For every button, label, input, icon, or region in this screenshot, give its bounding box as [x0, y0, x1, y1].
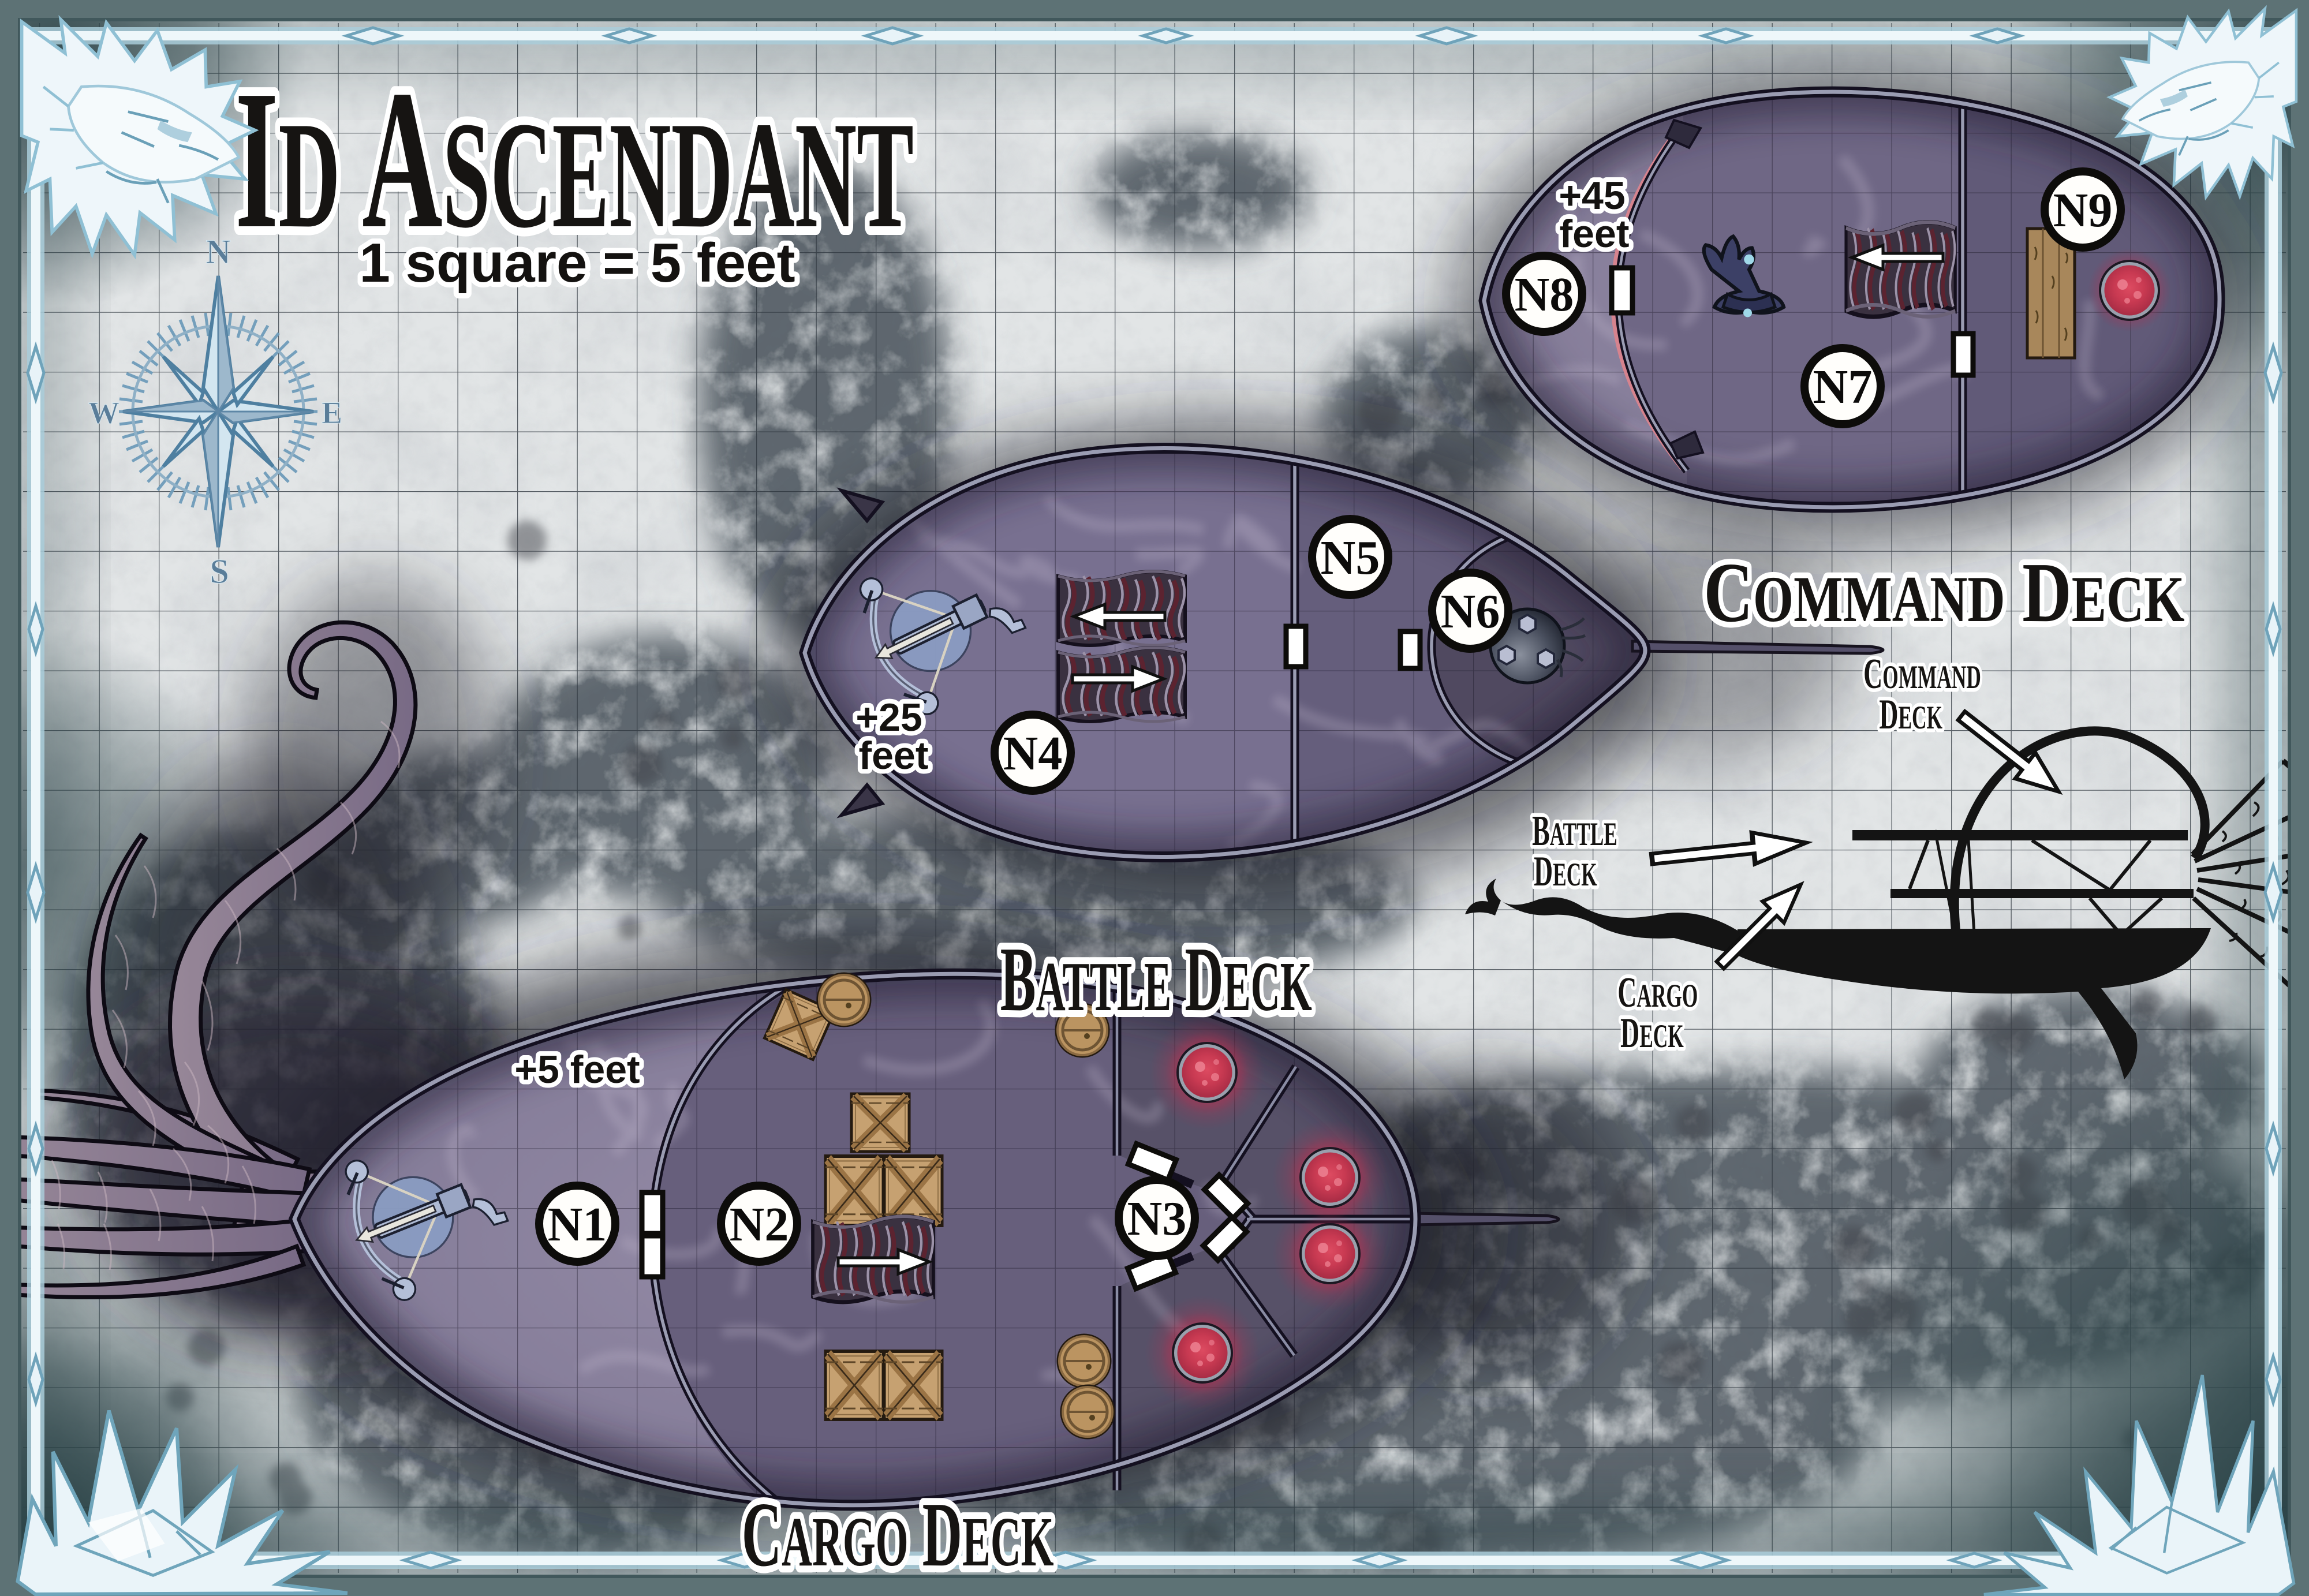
svg-text:N4: N4 [1003, 727, 1063, 780]
svg-text:N1: N1 [548, 1198, 607, 1251]
svg-text:N6: N6 [1441, 585, 1500, 638]
svg-text:feet: feet [1560, 212, 1630, 256]
svg-text:N9: N9 [2053, 184, 2113, 237]
svg-text:E: E [322, 395, 342, 430]
svg-text:+5 feet: +5 feet [514, 1048, 640, 1092]
svg-text:+25: +25 [855, 696, 922, 739]
svg-text:N7: N7 [1813, 360, 1873, 414]
svg-text:N5: N5 [1321, 531, 1380, 585]
svg-text:1 square = 5 feet: 1 square = 5 feet [359, 232, 795, 294]
svg-text:S: S [210, 552, 229, 590]
svg-text:N: N [206, 233, 230, 271]
svg-text:W: W [88, 395, 119, 430]
svg-text:N2: N2 [730, 1198, 789, 1251]
svg-text:N8: N8 [1515, 268, 1574, 322]
svg-text:+45: +45 [1559, 174, 1625, 218]
svg-text:N3: N3 [1127, 1192, 1187, 1246]
svg-text:feet: feet [859, 734, 929, 778]
